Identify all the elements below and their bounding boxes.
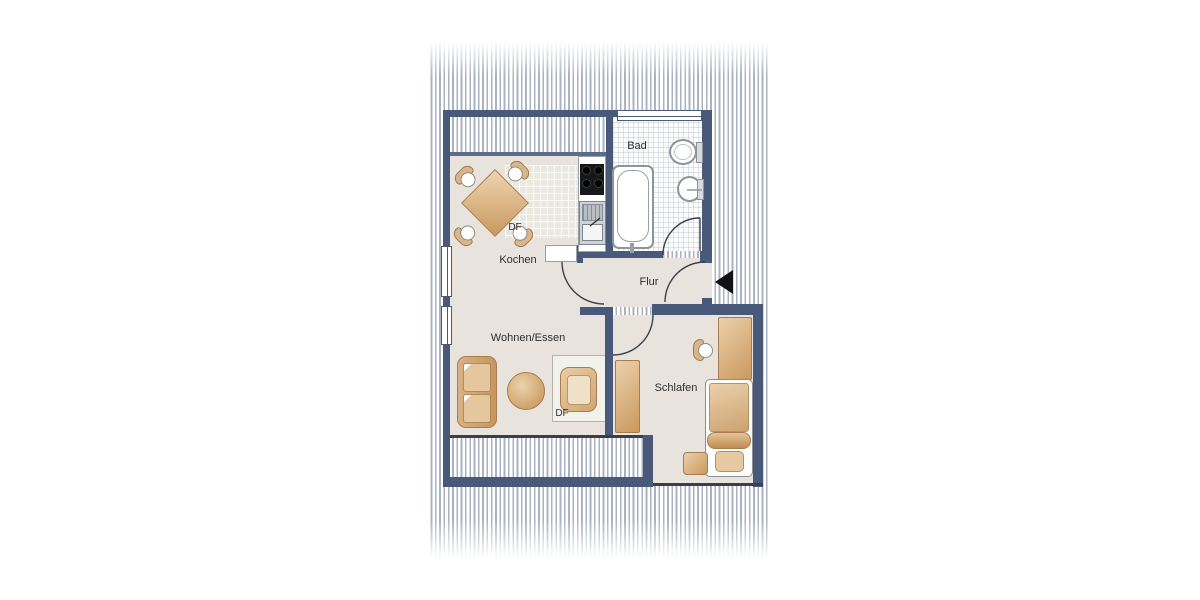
wall-segment <box>443 477 653 487</box>
room-label-living: Wohnen/Essen <box>491 332 565 344</box>
wall-segment <box>443 110 613 117</box>
kitchen-counter-return <box>545 245 577 262</box>
wardrobe <box>615 360 640 433</box>
nightstand <box>683 452 708 475</box>
wall-segment <box>753 304 763 487</box>
window-bathroom <box>617 110 702 121</box>
bathtub-faucet <box>630 243 634 253</box>
sofa <box>457 356 497 428</box>
skylight-label-living: DF <box>555 408 568 419</box>
bathroom-sink-shelf <box>697 179 704 200</box>
hatch-fade-bottom <box>428 520 768 558</box>
toilet <box>669 139 697 165</box>
bathtub <box>612 165 654 249</box>
bed <box>705 379 753 477</box>
floor-plan: Bad Kochen Flur Wohnen/Essen Schlafen DF… <box>0 0 1200 600</box>
armchair <box>560 367 597 412</box>
desk <box>718 317 752 380</box>
bedroom-floor-edge <box>653 483 763 486</box>
hatch-fade-top <box>428 42 768 76</box>
wall-segment <box>606 251 663 258</box>
room-label-bathroom: Bad <box>627 140 647 152</box>
room-label-bedroom: Schlafen <box>655 382 698 394</box>
wall-segment <box>652 304 753 315</box>
kitchen-sink <box>579 201 606 245</box>
wall-segment <box>605 307 613 437</box>
bed-blanket-roll <box>707 432 751 449</box>
living-floor-edge <box>450 435 643 438</box>
coffee-table <box>507 372 545 410</box>
wall-segment <box>443 110 450 487</box>
desk-chair <box>693 338 717 362</box>
window-left-upper <box>441 246 452 297</box>
wall-segment <box>700 251 712 263</box>
floor-entrance-threshold <box>702 263 712 298</box>
room-label-kitchen: Kochen <box>499 254 536 266</box>
bed-duvet <box>709 383 749 432</box>
window-left-lower <box>441 306 452 345</box>
wall-segment <box>643 435 653 487</box>
room-label-hallway: Flur <box>640 276 659 288</box>
bed-pillow <box>715 451 744 472</box>
toilet-cistern <box>696 142 703 163</box>
skylight-label-kitchen: DF <box>508 222 521 233</box>
